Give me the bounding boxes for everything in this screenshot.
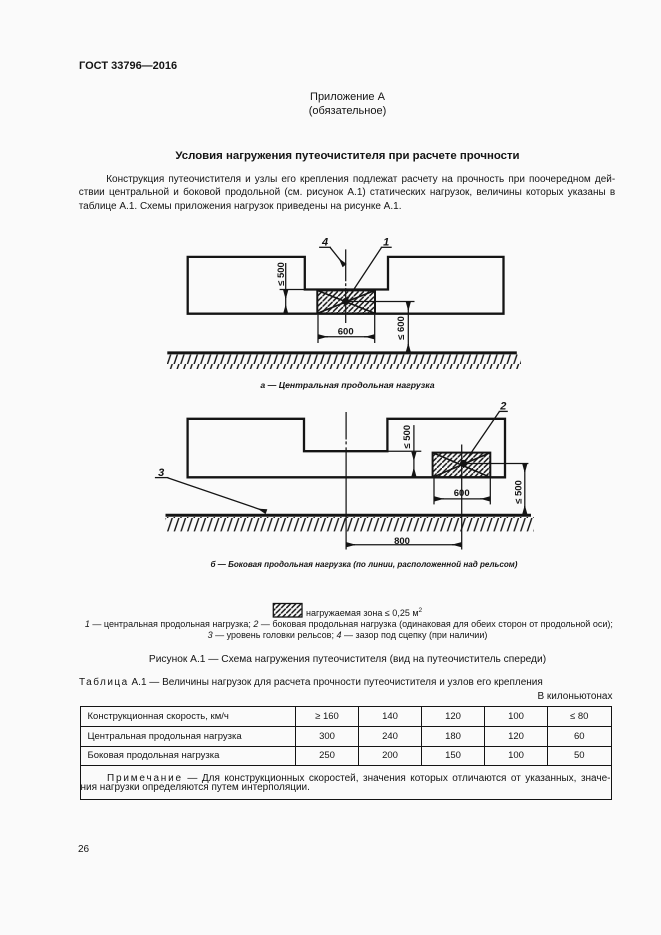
svg-text:800: 800 <box>394 536 410 547</box>
svg-text:600: 600 <box>338 327 354 338</box>
svg-text:3: 3 <box>158 467 164 479</box>
svg-text:1: 1 <box>383 237 389 249</box>
svg-text:≤ 500: ≤ 500 <box>402 425 413 449</box>
svg-text:600: 600 <box>454 488 470 499</box>
svg-text:≤ 500: ≤ 500 <box>276 262 287 286</box>
svg-text:≤ 500: ≤ 500 <box>514 480 525 504</box>
svg-text:4: 4 <box>321 237 328 249</box>
svg-text:≤ 600: ≤ 600 <box>396 316 407 340</box>
svg-text:2: 2 <box>499 401 506 413</box>
